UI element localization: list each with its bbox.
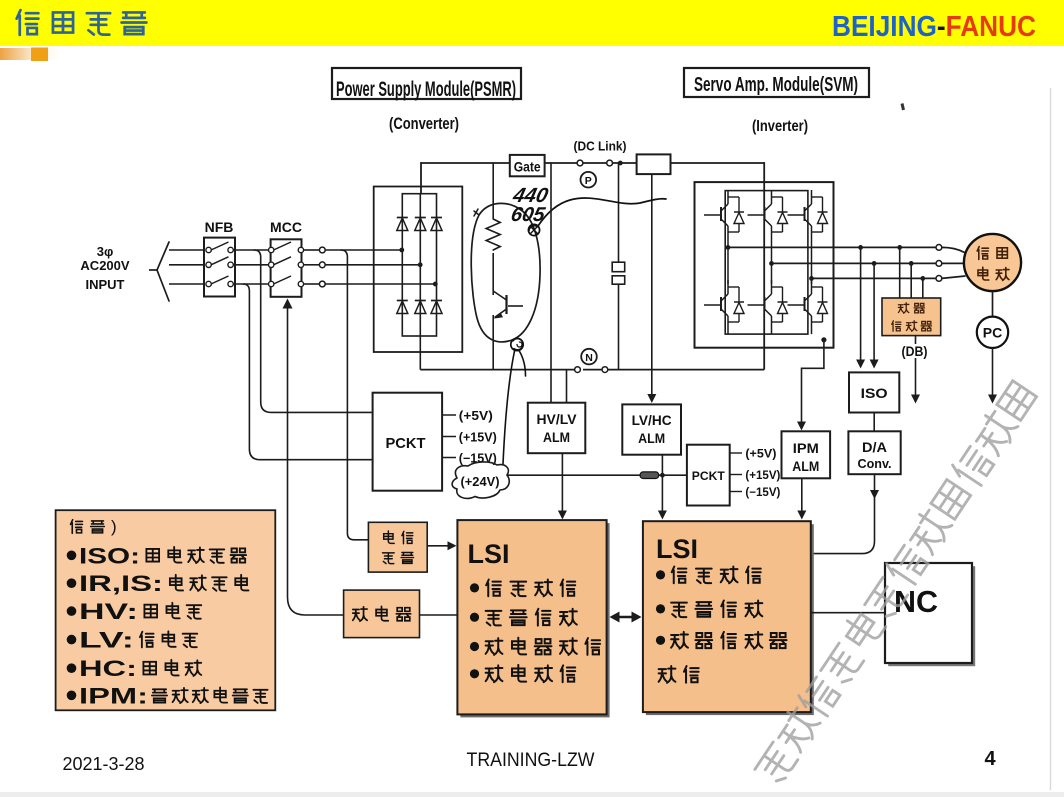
svg-text:(Converter): (Converter) xyxy=(389,114,459,133)
svg-text:PCKT: PCKT xyxy=(386,435,426,452)
svg-text:Power Supply Module(PSMR): Power Supply Module(PSMR) xyxy=(336,78,516,101)
svg-text:(−15V): (−15V) xyxy=(745,487,780,499)
svg-text:TRAINING-LZW: TRAINING-LZW xyxy=(467,750,595,771)
svg-text:(DC Link): (DC Link) xyxy=(574,139,627,154)
svg-text:PC: PC xyxy=(983,325,1002,341)
svg-text:IPM:: IPM: xyxy=(79,683,148,708)
svg-text:P: P xyxy=(585,175,592,187)
svg-text:Gate: Gate xyxy=(514,160,541,175)
svg-text:): ) xyxy=(111,517,117,536)
svg-text:(+24V): (+24V) xyxy=(461,475,500,489)
svg-text:MCC: MCC xyxy=(270,219,302,235)
svg-text:INPUT: INPUT xyxy=(86,277,125,292)
svg-text:3φ: 3φ xyxy=(97,244,114,259)
svg-text:HV:: HV: xyxy=(79,599,138,624)
svg-text:D/A: D/A xyxy=(862,440,887,455)
svg-text:605: 605 xyxy=(509,204,547,226)
svg-text:4: 4 xyxy=(984,748,996,770)
svg-text:(+5V): (+5V) xyxy=(459,409,493,423)
svg-text:(+15V): (+15V) xyxy=(459,431,497,445)
svg-text:2021-3-28: 2021-3-28 xyxy=(63,753,145,774)
svg-text:HC:: HC: xyxy=(79,656,137,681)
svg-text:Conv.: Conv. xyxy=(858,457,892,471)
svg-text:BEIJING-FANUC: BEIJING-FANUC xyxy=(832,11,1036,43)
svg-text:NC: NC xyxy=(894,584,938,619)
svg-text:N: N xyxy=(585,352,593,364)
svg-text:ISO: ISO xyxy=(861,385,888,401)
svg-text:Servo Amp. Module(SVM): Servo Amp. Module(SVM) xyxy=(694,74,858,96)
svg-text:PCKT: PCKT xyxy=(692,471,725,483)
svg-text:LV:: LV: xyxy=(79,628,134,653)
svg-text:LV/HC: LV/HC xyxy=(632,413,672,428)
svg-text:IR,IS:: IR,IS: xyxy=(79,571,163,596)
svg-text:ALM: ALM xyxy=(792,459,819,474)
svg-text:LSI: LSI xyxy=(468,539,510,569)
svg-text:IPM: IPM xyxy=(793,441,819,456)
svg-text:ALM: ALM xyxy=(543,430,570,445)
svg-text:LSI: LSI xyxy=(656,534,698,564)
svg-text:(Inverter): (Inverter) xyxy=(752,118,808,135)
svg-text:ALM: ALM xyxy=(638,431,665,446)
svg-text:(DB): (DB) xyxy=(902,344,928,359)
svg-text:(+5V): (+5V) xyxy=(745,449,776,461)
svg-text:ISO:: ISO: xyxy=(79,543,140,568)
svg-text:(+15V): (+15V) xyxy=(745,470,780,482)
svg-text:AC200V: AC200V xyxy=(80,258,129,273)
svg-text:NFB: NFB xyxy=(205,219,234,235)
svg-text:HV/LV: HV/LV xyxy=(537,412,577,427)
